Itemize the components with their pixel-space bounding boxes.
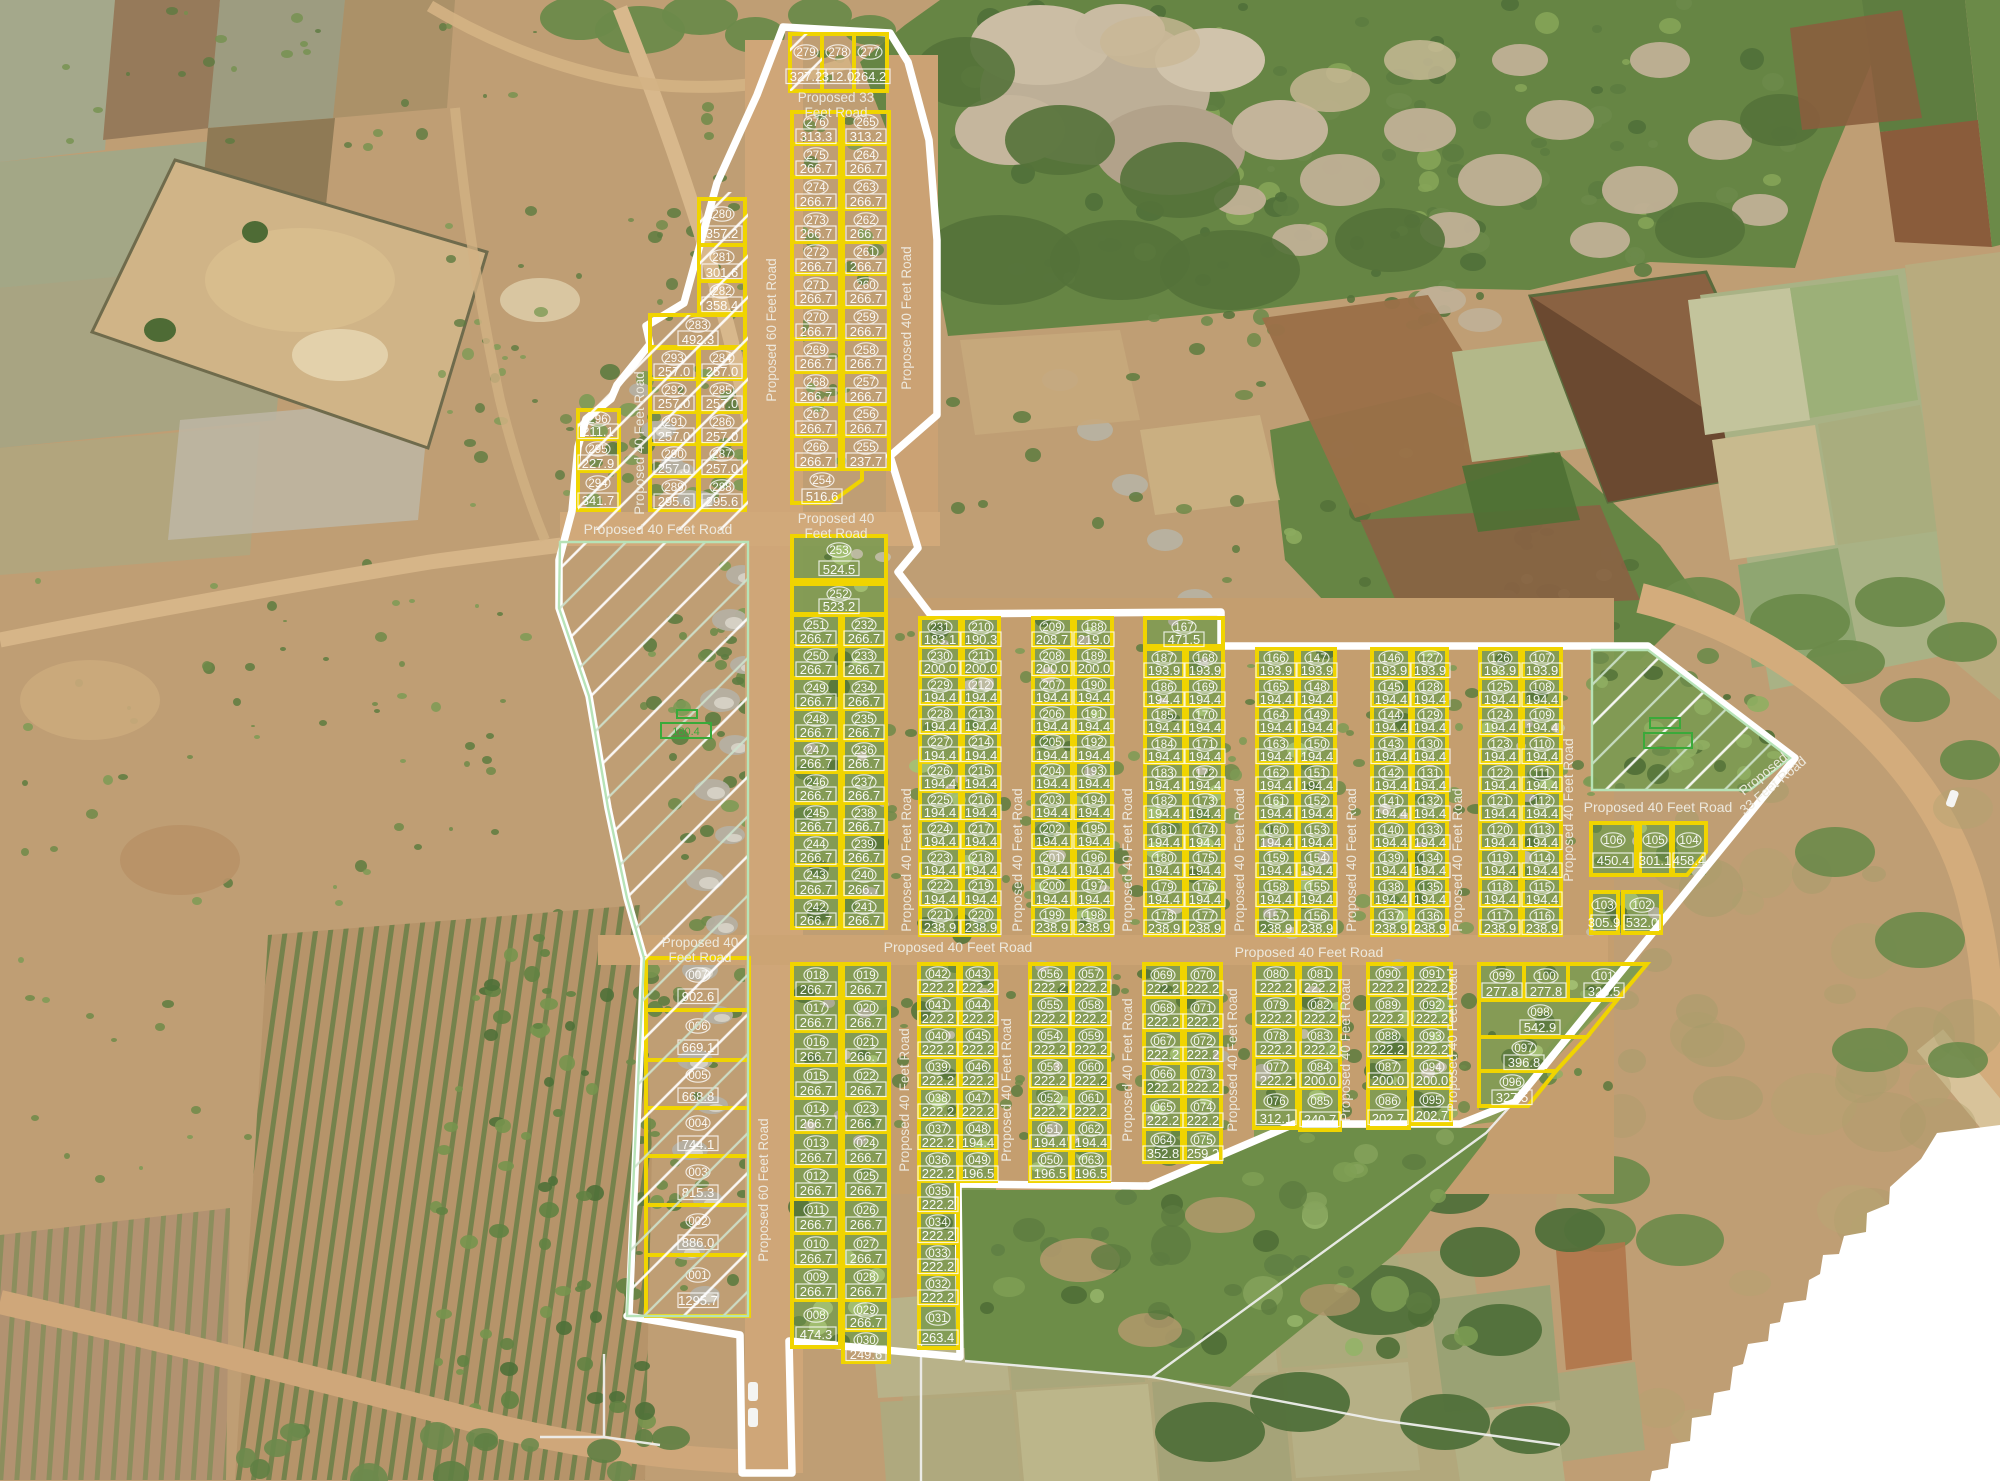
svg-text:259: 259: [856, 312, 875, 324]
svg-text:266.7: 266.7: [850, 982, 883, 997]
svg-text:266.7: 266.7: [850, 194, 883, 209]
svg-text:266.7: 266.7: [800, 1015, 833, 1030]
svg-text:Proposed 40 Feet Road: Proposed 40 Feet Road: [1120, 788, 1135, 931]
svg-text:222.2: 222.2: [1260, 1073, 1293, 1088]
svg-text:266.7: 266.7: [800, 259, 833, 274]
svg-text:Proposed 40 Feet Road: Proposed 40 Feet Road: [1584, 799, 1733, 815]
svg-text:222.2: 222.2: [1075, 1042, 1108, 1057]
svg-text:222.2: 222.2: [1075, 1073, 1108, 1088]
svg-text:194.4: 194.4: [1078, 892, 1111, 907]
svg-text:266.7: 266.7: [800, 1150, 833, 1165]
svg-text:301.1: 301.1: [1639, 853, 1672, 868]
svg-text:196.5: 196.5: [1034, 1166, 1067, 1181]
svg-text:266.7: 266.7: [850, 1217, 883, 1232]
svg-text:542.9: 542.9: [1524, 1020, 1557, 1035]
svg-text:222.2: 222.2: [1187, 981, 1220, 996]
svg-text:222.2: 222.2: [1034, 1073, 1067, 1088]
svg-text:266.7: 266.7: [848, 694, 881, 709]
svg-text:194.4: 194.4: [965, 748, 998, 763]
svg-text:516.6: 516.6: [806, 489, 839, 504]
svg-text:222.2: 222.2: [1147, 1047, 1180, 1062]
svg-text:222.2: 222.2: [1147, 981, 1180, 996]
svg-text:086: 086: [1378, 1096, 1397, 1108]
svg-text:266.7: 266.7: [800, 421, 833, 436]
svg-text:009: 009: [806, 1272, 825, 1284]
svg-text:222.2: 222.2: [1147, 1113, 1180, 1128]
svg-text:Proposed 40 Feet Road: Proposed 40 Feet Road: [632, 371, 647, 514]
svg-text:222.2: 222.2: [922, 1197, 955, 1212]
svg-text:266.7: 266.7: [850, 1116, 883, 1131]
svg-text:Proposed 40 Feet Road: Proposed 40 Feet Road: [1445, 968, 1460, 1111]
svg-text:027: 027: [856, 1239, 875, 1251]
svg-text:194.4: 194.4: [965, 892, 998, 907]
svg-text:253: 253: [829, 545, 848, 557]
svg-text:266.7: 266.7: [850, 291, 883, 306]
svg-text:099: 099: [1492, 971, 1511, 983]
svg-text:222.2: 222.2: [1187, 1113, 1220, 1128]
svg-text:222.2: 222.2: [1034, 1104, 1067, 1119]
svg-text:240.7: 240.7: [1304, 1112, 1337, 1127]
svg-text:266.7: 266.7: [850, 161, 883, 176]
svg-text:194.4: 194.4: [1036, 748, 1069, 763]
svg-text:266.7: 266.7: [800, 1049, 833, 1064]
svg-text:222.2: 222.2: [1187, 1047, 1220, 1062]
svg-text:266.7: 266.7: [850, 226, 883, 241]
svg-text:266.7: 266.7: [800, 291, 833, 306]
svg-text:266.7: 266.7: [850, 324, 883, 339]
svg-text:200.0: 200.0: [1372, 1073, 1405, 1088]
svg-text:268: 268: [806, 377, 825, 389]
svg-text:263: 263: [856, 182, 875, 194]
svg-text:194.4: 194.4: [1075, 1135, 1108, 1150]
svg-text:010: 010: [806, 1239, 825, 1251]
svg-text:313.2: 313.2: [850, 129, 883, 144]
svg-text:266.7: 266.7: [800, 389, 833, 404]
svg-text:097: 097: [1514, 1043, 1533, 1055]
svg-text:278: 278: [828, 47, 847, 59]
svg-text:270: 270: [806, 312, 825, 324]
svg-text:Feet Road: Feet Road: [804, 105, 867, 120]
svg-text:255: 255: [856, 442, 875, 454]
svg-text:028: 028: [856, 1272, 875, 1284]
svg-text:222.2: 222.2: [1372, 980, 1405, 995]
svg-text:222.2: 222.2: [1260, 1011, 1293, 1026]
svg-text:266.7: 266.7: [800, 882, 833, 897]
svg-text:Proposed 40 Feet Road: Proposed 40 Feet Road: [1010, 788, 1025, 931]
svg-text:272: 272: [806, 247, 825, 259]
svg-text:018: 018: [806, 970, 825, 982]
svg-text:194.4: 194.4: [1034, 1135, 1067, 1150]
svg-text:237.7: 237.7: [850, 454, 883, 469]
svg-text:266.7: 266.7: [800, 756, 833, 771]
svg-text:266.7: 266.7: [800, 1217, 833, 1232]
svg-text:Proposed 40 Feet Road: Proposed 40 Feet Road: [999, 1018, 1014, 1161]
svg-text:222.2: 222.2: [1304, 980, 1337, 995]
svg-text:257: 257: [856, 377, 875, 389]
svg-text:Feet Road: Feet Road: [668, 950, 731, 965]
svg-text:266.7: 266.7: [848, 819, 881, 834]
svg-text:096: 096: [1502, 1077, 1521, 1089]
svg-text:261: 261: [856, 247, 875, 259]
svg-text:266.7: 266.7: [800, 226, 833, 241]
svg-text:352.8: 352.8: [1147, 1146, 1180, 1161]
svg-text:327.5: 327.5: [1496, 1090, 1529, 1105]
svg-text:222.2: 222.2: [962, 980, 995, 995]
svg-text:194.4: 194.4: [924, 892, 957, 907]
svg-text:200.0: 200.0: [1304, 1073, 1337, 1088]
svg-text:Proposed 40 Feet Road: Proposed 40 Feet Road: [1232, 788, 1247, 931]
svg-text:222.2: 222.2: [922, 1290, 955, 1305]
svg-text:266.7: 266.7: [848, 788, 881, 803]
svg-text:100: 100: [1536, 971, 1555, 983]
svg-text:266.7: 266.7: [850, 356, 883, 371]
svg-text:222.2: 222.2: [1416, 980, 1449, 995]
svg-text:266.7: 266.7: [800, 1083, 833, 1098]
svg-text:222.2: 222.2: [1187, 1080, 1220, 1095]
svg-text:222.2: 222.2: [1147, 1014, 1180, 1029]
svg-text:008: 008: [806, 1310, 825, 1322]
svg-text:266.7: 266.7: [800, 1251, 833, 1266]
svg-text:266.7: 266.7: [800, 850, 833, 865]
svg-text:222.2: 222.2: [922, 980, 955, 995]
svg-text:266.7: 266.7: [800, 194, 833, 209]
svg-text:194.4: 194.4: [1078, 748, 1111, 763]
svg-text:222.2: 222.2: [922, 1135, 955, 1150]
svg-text:222.2: 222.2: [922, 1073, 955, 1088]
svg-text:266.7: 266.7: [850, 1049, 883, 1064]
svg-text:474.3: 474.3: [800, 1327, 833, 1342]
svg-text:196.5: 196.5: [1075, 1166, 1108, 1181]
svg-text:026: 026: [856, 1205, 875, 1217]
svg-text:266.7: 266.7: [850, 1083, 883, 1098]
svg-text:222.2: 222.2: [1075, 1104, 1108, 1119]
svg-text:222.2: 222.2: [1075, 980, 1108, 995]
svg-text:Proposed 40 Feet Road: Proposed 40 Feet Road: [1344, 788, 1359, 931]
svg-text:266.7: 266.7: [848, 850, 881, 865]
svg-text:305.9: 305.9: [1588, 915, 1621, 930]
svg-text:196.5: 196.5: [962, 1166, 995, 1181]
svg-text:180.4: 180.4: [672, 726, 700, 738]
svg-text:095: 095: [1422, 1095, 1441, 1107]
svg-text:266.7: 266.7: [800, 1116, 833, 1131]
svg-text:266.7: 266.7: [800, 1284, 833, 1299]
svg-text:266.7: 266.7: [800, 788, 833, 803]
svg-text:266.7: 266.7: [848, 756, 881, 771]
svg-text:266.7: 266.7: [800, 725, 833, 740]
svg-text:022: 022: [856, 1071, 875, 1083]
svg-text:222.2: 222.2: [922, 1228, 955, 1243]
svg-text:266.7: 266.7: [850, 1251, 883, 1266]
svg-text:105: 105: [1645, 835, 1664, 847]
svg-text:266.7: 266.7: [848, 725, 881, 740]
svg-text:Proposed 60 Feet Road: Proposed 60 Feet Road: [756, 1118, 771, 1261]
svg-text:030: 030: [856, 1335, 875, 1347]
svg-text:013: 013: [806, 1138, 825, 1150]
svg-text:266.7: 266.7: [800, 694, 833, 709]
svg-text:Proposed 40 Feet Road: Proposed 40 Feet Road: [899, 788, 914, 931]
svg-text:266.7: 266.7: [800, 982, 833, 997]
svg-text:Proposed 40 Feet Road: Proposed 40 Feet Road: [1561, 738, 1576, 881]
svg-text:266.7: 266.7: [800, 324, 833, 339]
svg-text:266.7: 266.7: [800, 356, 833, 371]
svg-text:Proposed 60 Feet Road: Proposed 60 Feet Road: [764, 258, 779, 401]
svg-text:Proposed 40 Feet Road: Proposed 40 Feet Road: [1450, 788, 1465, 931]
svg-text:222.2: 222.2: [1260, 980, 1293, 995]
svg-text:202.7: 202.7: [1372, 1111, 1405, 1126]
svg-text:Proposed 40 Feet Road: Proposed 40 Feet Road: [899, 246, 914, 389]
svg-text:532.0: 532.0: [1626, 915, 1659, 930]
svg-text:266.7: 266.7: [800, 913, 833, 928]
svg-text:015: 015: [806, 1071, 825, 1083]
svg-text:102: 102: [1632, 900, 1651, 912]
svg-text:266.7: 266.7: [800, 631, 833, 646]
svg-text:243: 243: [806, 870, 825, 882]
svg-text:256: 256: [856, 409, 875, 421]
svg-text:249.6: 249.6: [850, 1347, 883, 1362]
svg-text:076: 076: [1266, 1096, 1285, 1108]
svg-text:031: 031: [928, 1313, 947, 1325]
svg-text:266.7: 266.7: [850, 389, 883, 404]
svg-text:222.2: 222.2: [1034, 1042, 1067, 1057]
svg-text:222.2: 222.2: [1187, 1014, 1220, 1029]
svg-text:266.7: 266.7: [848, 913, 881, 928]
svg-text:222.2: 222.2: [1034, 980, 1067, 995]
svg-text:222.2: 222.2: [922, 1042, 955, 1057]
svg-text:017: 017: [806, 1003, 825, 1015]
svg-text:222.2: 222.2: [1304, 1011, 1337, 1026]
svg-text:Proposed 33: Proposed 33: [798, 90, 875, 105]
svg-text:264.2: 264.2: [854, 69, 887, 84]
svg-text:266.7: 266.7: [850, 1150, 883, 1165]
svg-text:194.4: 194.4: [924, 748, 957, 763]
svg-text:Proposed 40: Proposed 40: [798, 511, 875, 526]
svg-text:266: 266: [806, 442, 825, 454]
svg-text:266.7: 266.7: [850, 259, 883, 274]
svg-text:266.7: 266.7: [800, 662, 833, 677]
svg-text:222.2: 222.2: [1304, 1042, 1337, 1057]
svg-text:266.7: 266.7: [848, 882, 881, 897]
svg-text:222.2: 222.2: [962, 1104, 995, 1119]
svg-text:098: 098: [1530, 1007, 1549, 1019]
svg-text:259.2: 259.2: [1187, 1146, 1220, 1161]
svg-text:222.2: 222.2: [922, 1011, 955, 1026]
svg-text:266.7: 266.7: [800, 1183, 833, 1198]
svg-text:Proposed 40 Feet Road: Proposed 40 Feet Road: [897, 1028, 912, 1171]
svg-text:263.4: 263.4: [922, 1330, 955, 1345]
svg-text:240: 240: [854, 870, 873, 882]
svg-text:011: 011: [807, 1205, 825, 1217]
svg-text:266.7: 266.7: [800, 819, 833, 834]
svg-text:222.2: 222.2: [962, 1042, 995, 1057]
svg-text:266.7: 266.7: [800, 161, 833, 176]
svg-text:396.8: 396.8: [1508, 1055, 1541, 1070]
svg-text:106: 106: [1603, 835, 1622, 847]
svg-text:222.2: 222.2: [922, 1104, 955, 1119]
svg-text:012: 012: [806, 1171, 825, 1183]
svg-text:450.4: 450.4: [1597, 853, 1630, 868]
svg-text:267: 267: [806, 409, 825, 421]
svg-text:524.5: 524.5: [823, 562, 856, 577]
svg-text:458.4: 458.4: [1673, 853, 1706, 868]
svg-text:202.7: 202.7: [1416, 1108, 1449, 1123]
svg-text:222.2: 222.2: [1372, 1042, 1405, 1057]
svg-text:101: 101: [1594, 971, 1613, 983]
svg-text:103: 103: [1594, 900, 1613, 912]
svg-text:021: 021: [856, 1037, 875, 1049]
svg-text:222.2: 222.2: [1416, 1011, 1449, 1026]
svg-text:023: 023: [856, 1104, 875, 1116]
svg-text:194.4: 194.4: [962, 1135, 995, 1150]
svg-text:222.2: 222.2: [1075, 1011, 1108, 1026]
svg-text:222.2: 222.2: [962, 1073, 995, 1088]
svg-text:016: 016: [806, 1037, 825, 1049]
svg-text:222.2: 222.2: [1416, 1042, 1449, 1057]
svg-text:266.7: 266.7: [848, 631, 881, 646]
svg-text:Proposed 40 Feet Road: Proposed 40 Feet Road: [1225, 988, 1240, 1131]
svg-text:313.3: 313.3: [800, 129, 833, 144]
svg-text:328.5: 328.5: [1588, 984, 1621, 999]
svg-text:266.7: 266.7: [850, 1284, 883, 1299]
svg-text:266.7: 266.7: [800, 454, 833, 469]
svg-text:Proposed 40 Feet Road: Proposed 40 Feet Road: [1120, 998, 1135, 1141]
svg-text:194.4: 194.4: [1036, 892, 1069, 907]
svg-text:025: 025: [856, 1171, 875, 1183]
svg-text:222.2: 222.2: [922, 1259, 955, 1274]
svg-text:200.0: 200.0: [1416, 1073, 1449, 1088]
svg-text:085: 085: [1310, 1096, 1329, 1108]
svg-text:277.8: 277.8: [1530, 984, 1563, 999]
svg-text:266.7: 266.7: [850, 421, 883, 436]
svg-text:222.2: 222.2: [1260, 1042, 1293, 1057]
svg-text:222.2: 222.2: [922, 1166, 955, 1181]
svg-text:Proposed 40 Feet Road: Proposed 40 Feet Road: [584, 521, 733, 537]
svg-text:222.2: 222.2: [962, 1011, 995, 1026]
svg-text:312.1: 312.1: [1260, 1111, 1293, 1126]
svg-text:Proposed 40: Proposed 40: [662, 935, 739, 950]
svg-text:019: 019: [856, 970, 875, 982]
svg-text:Proposed 40 Feet Road: Proposed 40 Feet Road: [1338, 978, 1353, 1121]
svg-text:Proposed 40 Feet Road: Proposed 40 Feet Road: [1235, 944, 1384, 960]
svg-text:277.8: 277.8: [1486, 984, 1519, 999]
svg-text:266.7: 266.7: [850, 1183, 883, 1198]
svg-text:222.2: 222.2: [1147, 1080, 1180, 1095]
svg-text:266.7: 266.7: [848, 662, 881, 677]
svg-text:266.7: 266.7: [850, 1015, 883, 1030]
svg-text:Feet Road: Feet Road: [804, 526, 867, 541]
svg-text:Proposed 40 Feet Road: Proposed 40 Feet Road: [884, 939, 1033, 955]
svg-text:312.0: 312.0: [822, 69, 855, 84]
svg-text:277: 277: [860, 47, 879, 59]
svg-text:020: 020: [856, 1003, 875, 1015]
svg-text:222.2: 222.2: [1372, 1011, 1405, 1026]
svg-text:222.2: 222.2: [1034, 1011, 1067, 1026]
